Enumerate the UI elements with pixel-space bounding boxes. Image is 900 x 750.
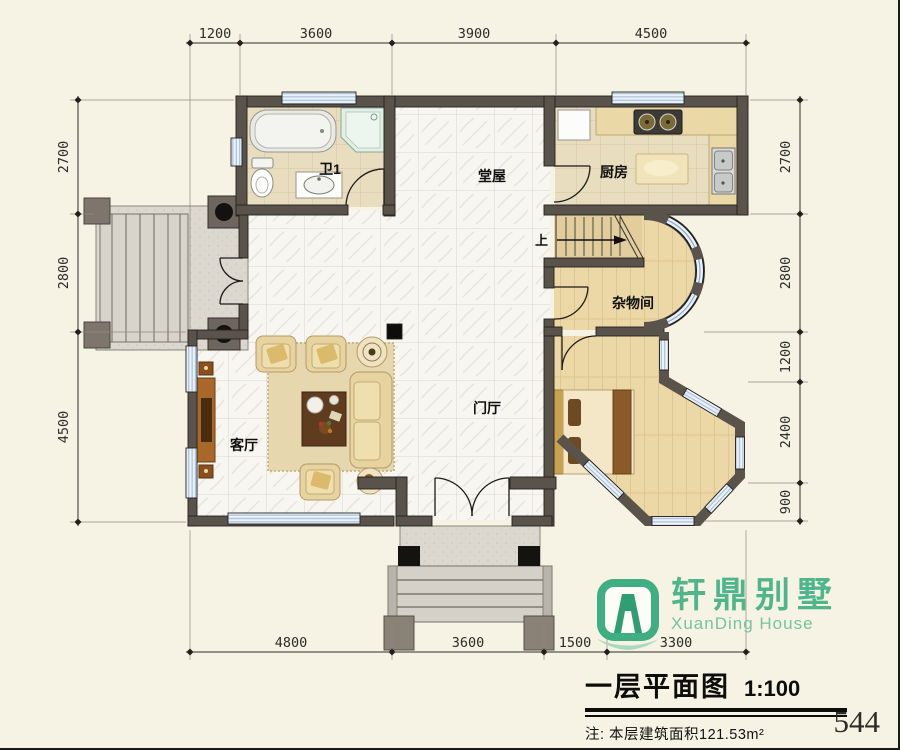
entry-column-black-left bbox=[398, 546, 420, 566]
wall-bathroom-south-jamb bbox=[383, 205, 395, 215]
wall-bedroom-west bbox=[544, 336, 554, 526]
window-bedroom-south bbox=[652, 517, 694, 526]
window-kitchen-north bbox=[612, 92, 684, 104]
wall-foyer-south-east bbox=[512, 516, 552, 526]
stove-burner-right-center bbox=[666, 120, 670, 124]
fridge bbox=[558, 110, 590, 140]
wall-foyer-south-west bbox=[396, 516, 432, 526]
entry-column-black-right bbox=[518, 546, 540, 566]
entry-column-gray-right bbox=[524, 616, 554, 650]
label-storage: 杂物间 bbox=[612, 295, 654, 311]
label-living: 客厅 bbox=[229, 437, 258, 453]
flower-3 bbox=[328, 429, 332, 433]
window-living-west-lower bbox=[186, 448, 197, 498]
sofa-cushion-top bbox=[354, 382, 380, 420]
speaker-bottom-dot bbox=[204, 469, 208, 473]
kitchen-island-highlight bbox=[644, 160, 678, 176]
page-number: 544 bbox=[834, 704, 881, 740]
toilet-tank bbox=[252, 158, 273, 168]
wall-storage-west-upper bbox=[544, 267, 554, 288]
wall-kitchen-west bbox=[544, 96, 555, 166]
floor-hall-foyer bbox=[390, 102, 550, 520]
title-underline-thick bbox=[585, 708, 847, 712]
label-bathroom: 卫1 bbox=[319, 161, 341, 177]
west-porch-column-outer-bottom bbox=[84, 322, 110, 348]
dim-top-1200: 1200 bbox=[199, 26, 232, 42]
logo-house-icon bbox=[593, 578, 663, 656]
sink-drain-bottom bbox=[721, 181, 724, 184]
dim-bottom-1500: 1500 bbox=[559, 635, 592, 651]
window-bathroom-west bbox=[231, 138, 242, 166]
drawing-title-line: 一层平面图 1:100 bbox=[585, 665, 885, 704]
entry-steps-rail-right bbox=[543, 566, 552, 622]
flower-2 bbox=[327, 421, 331, 425]
drawing-title: 一层平面图 bbox=[585, 665, 730, 704]
wall-stairs-south bbox=[544, 258, 644, 267]
dim-left-2800: 2800 bbox=[56, 257, 72, 290]
dim-right-2400: 2400 bbox=[778, 416, 794, 449]
dim-left-2700: 2700 bbox=[56, 141, 72, 174]
dim-top-4500: 4500 bbox=[635, 26, 668, 42]
label-stairs-up: 上 bbox=[535, 233, 548, 248]
entry-column-gray-left bbox=[384, 616, 414, 650]
west-porch-steps bbox=[100, 214, 188, 342]
window-bedroom-east bbox=[736, 437, 745, 469]
brand-logo: 轩鼎别墅 XuanDing House bbox=[593, 578, 883, 656]
bedroom-furniture bbox=[550, 390, 634, 474]
dim-left-4500: 4500 bbox=[56, 411, 72, 444]
wall-foyer-alcove-east bbox=[510, 477, 556, 489]
stove-burner-left-center bbox=[645, 120, 649, 124]
dim-top-3900: 3900 bbox=[458, 26, 491, 42]
floor-stairs bbox=[556, 215, 642, 258]
wall-west-door-upper bbox=[239, 212, 248, 258]
floor-plan-page: 1200 3600 3900 4500 4800 3600 1500 3300 … bbox=[0, 0, 900, 750]
label-kitchen: 厨房 bbox=[600, 164, 628, 180]
bed-pillow-top bbox=[568, 399, 581, 426]
speaker-top-dot bbox=[204, 366, 208, 370]
column-hall-corner bbox=[387, 324, 402, 339]
wall-kitchen-east bbox=[737, 96, 748, 215]
dim-bottom-3600: 3600 bbox=[452, 635, 485, 651]
dim-right-1200: 1200 bbox=[778, 341, 794, 374]
sofa-cushion-bottom bbox=[354, 422, 380, 460]
dim-right-2800: 2800 bbox=[778, 257, 794, 290]
wall-bathroom-south bbox=[236, 205, 348, 215]
drawing-scale: 1:100 bbox=[744, 676, 800, 702]
window-living-west-upper bbox=[186, 346, 197, 392]
window-bedroom-northeast bbox=[660, 340, 669, 370]
dim-right-900: 900 bbox=[778, 490, 794, 514]
tv bbox=[201, 398, 212, 442]
bathtub-inner bbox=[255, 114, 331, 148]
label-hall: 堂屋 bbox=[478, 168, 506, 184]
sink-drain-top bbox=[721, 159, 724, 162]
west-porch-column-top-core bbox=[215, 203, 233, 221]
window-bathroom-north bbox=[282, 92, 356, 104]
coffee-table-plate bbox=[307, 397, 323, 413]
dim-bottom-4800: 4800 bbox=[275, 635, 308, 651]
side-table-top-center bbox=[369, 349, 376, 356]
wall-storage-bedroom-west bbox=[544, 327, 562, 336]
sink-faucet bbox=[317, 177, 321, 181]
window-living-south bbox=[228, 513, 360, 524]
logo-name-cn: 轩鼎别墅 bbox=[671, 578, 839, 613]
flower-1 bbox=[319, 422, 323, 426]
entry-steps-rail-left bbox=[388, 566, 397, 622]
dim-right-2700: 2700 bbox=[778, 141, 794, 174]
logo-name-en: XuanDing House bbox=[671, 615, 839, 632]
coffee-table-cup bbox=[330, 396, 339, 405]
wall-bathroom-east bbox=[384, 96, 395, 216]
bathtub-drain bbox=[320, 129, 324, 133]
title-underline-thin bbox=[585, 715, 847, 717]
west-porch-column-outer-top bbox=[84, 198, 110, 224]
dim-top-3600: 3600 bbox=[300, 26, 333, 42]
bed-blanket-fold bbox=[613, 390, 631, 474]
label-foyer: 门厅 bbox=[473, 400, 501, 416]
